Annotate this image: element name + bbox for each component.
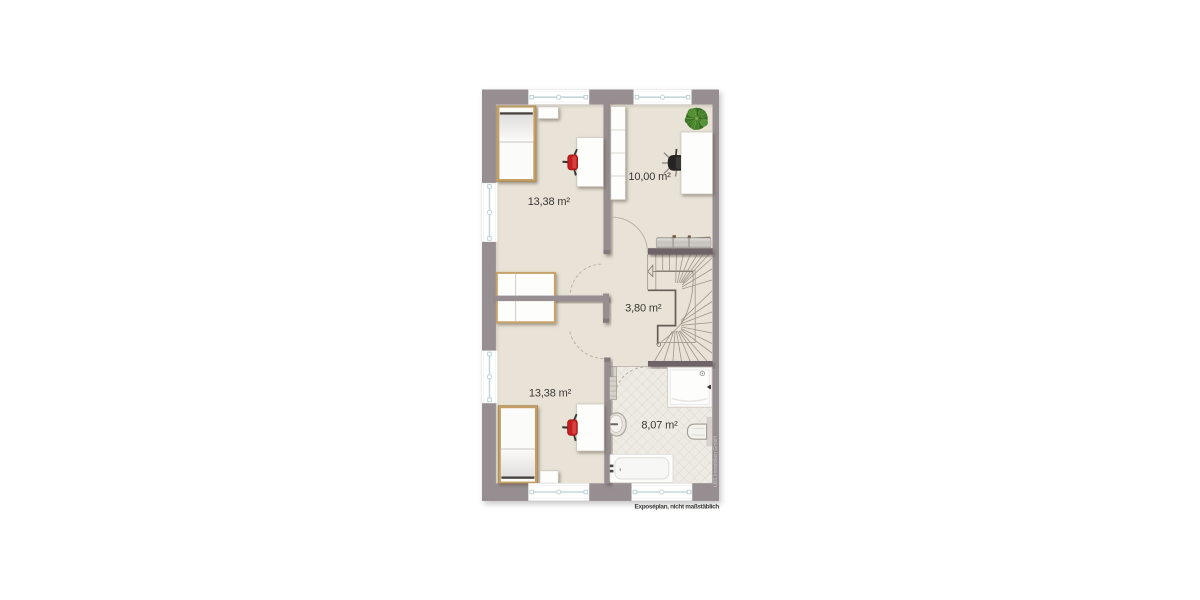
svg-text:10,00 m²: 10,00 m² bbox=[628, 171, 671, 183]
svg-text:3,80 m²: 3,80 m² bbox=[625, 303, 662, 315]
svg-text:13,38 m²: 13,38 m² bbox=[529, 387, 572, 399]
svg-text:Exposéplan, nicht maßstäblich: Exposéplan, nicht maßstäblich bbox=[635, 504, 720, 511]
svg-text:8,07 m²: 8,07 m² bbox=[641, 419, 678, 431]
svg-text:LBS Immobilien GmbH: LBS Immobilien GmbH bbox=[713, 436, 719, 487]
svg-text:13,38 m²: 13,38 m² bbox=[528, 196, 571, 208]
